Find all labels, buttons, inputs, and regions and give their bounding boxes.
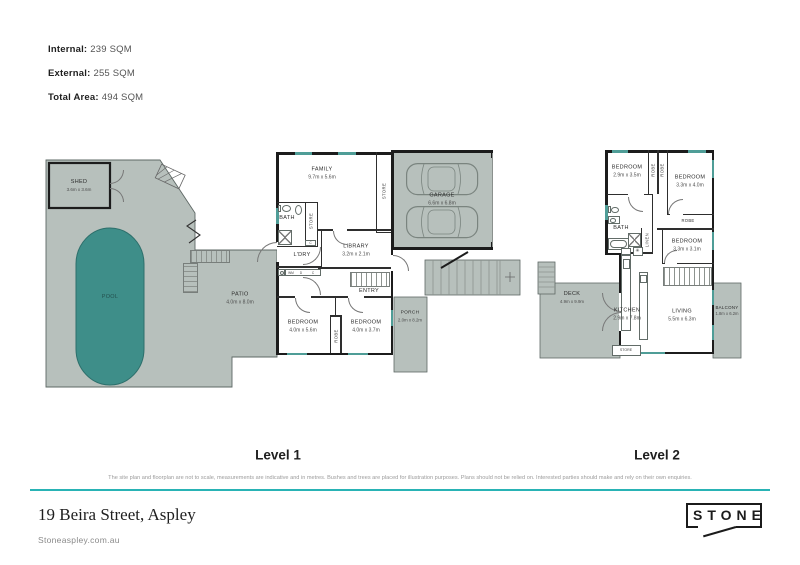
window [348,353,368,356]
front-steps-area [425,260,520,295]
vanity-basin-icon [610,218,616,223]
stairs [350,272,390,287]
room-label-porch: PORCH2.0m x 8.2m [398,310,422,323]
wall [276,152,279,242]
room-label-kitchen: KITCHEN2.9m x 7.8m [613,307,641,322]
stairs [190,250,230,263]
level1-title: Level 1 [255,448,301,463]
store-label: STORE [620,348,632,352]
room-label-library: LIBRARY3.2m x 2.1m [342,243,370,258]
basin-icon [295,205,302,215]
cupboard-label-c: C [309,241,311,245]
room-label-linen: LINEN [644,233,649,247]
room-label-robe: ROBE [650,163,655,176]
window [612,150,628,153]
room-label-bath: BATH [279,215,294,223]
garage-door-line [492,153,493,247]
room-label-robe: ROBE [333,329,338,342]
bathtub-icon [610,240,627,248]
wall [683,214,714,216]
room-label-shed: SHED3.6m x 3.6m [67,179,92,193]
wall [335,296,337,316]
room-label-robe: ROBE [681,218,694,224]
wall [317,202,319,246]
summary-internal: Internal:239 SQM [48,44,143,55]
wall [662,228,664,264]
room-label-store: STORE [381,183,386,199]
wall [347,229,391,231]
wall [677,263,714,265]
room-label-bedroom: BEDROOM4.0m x 5.6m [288,319,319,334]
wall [648,150,650,194]
window [712,325,715,340]
appliance-label-d: D [300,271,302,275]
kitchen-sink-icon [623,259,630,269]
wall [318,267,391,269]
wall [712,305,715,325]
stairs [183,263,198,293]
window [712,232,715,250]
disclaimer-text: The site plan and floorplan are not to s… [108,475,692,481]
room-label-bedroom: BEDROOM3.3m x 4.0m [675,174,706,189]
toilet-icon [278,205,281,212]
kitchen-island-box [640,275,647,283]
level2-title: Level 2 [634,448,680,463]
footer-divider-line [30,489,770,491]
room-label-bath: BATH [613,225,628,233]
porch-area [394,297,427,372]
garage-wall [391,150,493,153]
toilet-icon [282,205,291,212]
area-summary: Internal:239 SQM External:255 SQM Total … [48,44,143,116]
wall [376,232,392,234]
room-label-bedroom: BEDROOM3.3m x 3.1m [672,238,703,253]
cooktop-symbol: ✳ [635,248,639,254]
stairs [663,267,712,286]
window [338,152,356,155]
wall [277,202,318,204]
room-label-deck: DECK4.9m x 9.9m [560,291,584,305]
shower-icon [278,230,292,245]
floorplan-page: Internal:239 SQM External:255 SQM Total … [0,0,800,565]
cooktop-icon [621,248,631,255]
pool-shape [76,228,144,385]
window [688,150,706,153]
wall [364,296,391,298]
window [712,290,715,305]
room-label-robe: ROBE [660,163,665,176]
balcony-area [713,283,741,358]
summary-external: External:255 SQM [48,68,143,79]
garage-wall [391,247,493,250]
property-address: 19 Beira Street, Aspley [38,505,196,525]
room-label-bedroom: BEDROOM4.0m x 3.7m [351,319,382,334]
appliance-label-wm: WM [288,271,294,275]
wall [607,194,628,196]
room-label-ldry: L'DRY [293,252,310,260]
room-label-family: FAMILY9.7m x 5.6m [308,166,336,181]
room-label-bedroom: BEDROOM2.9m x 3.5m [612,164,643,179]
window [712,160,715,178]
toilet-icon [611,207,619,214]
room-label-pool: POOL [102,294,118,302]
room-label-garage: GARAGE6.6m x 6.8m [428,192,456,207]
wall [376,152,378,233]
stone-logo-text: STONE [688,507,766,523]
room-label-balcony: BALCONY1.8m x 6.2m [715,305,738,317]
window [287,353,307,356]
shower-icon [628,233,641,247]
wall [652,194,654,254]
toilet-icon [280,271,284,275]
wall [340,315,342,353]
wall [667,150,669,195]
room-label-store: STORE [308,213,313,229]
room-label-patio: PATIO4.0m x 8.0m [226,291,254,306]
window [391,310,394,326]
wall [330,315,332,353]
cupboard-label-c: C [312,271,314,275]
garage-wall [391,150,394,250]
summary-total: Total Area:494 SQM [48,92,143,103]
wall [277,296,295,298]
room-label-entry: ENTRY [359,288,379,296]
wall [277,266,321,268]
window [295,152,312,155]
wall [657,150,659,194]
wall [657,228,714,230]
room-label-living: LIVING5.5m x 6.3m [668,308,696,323]
agency-website: Stoneaspley.com.au [38,535,120,545]
wall [311,296,348,298]
